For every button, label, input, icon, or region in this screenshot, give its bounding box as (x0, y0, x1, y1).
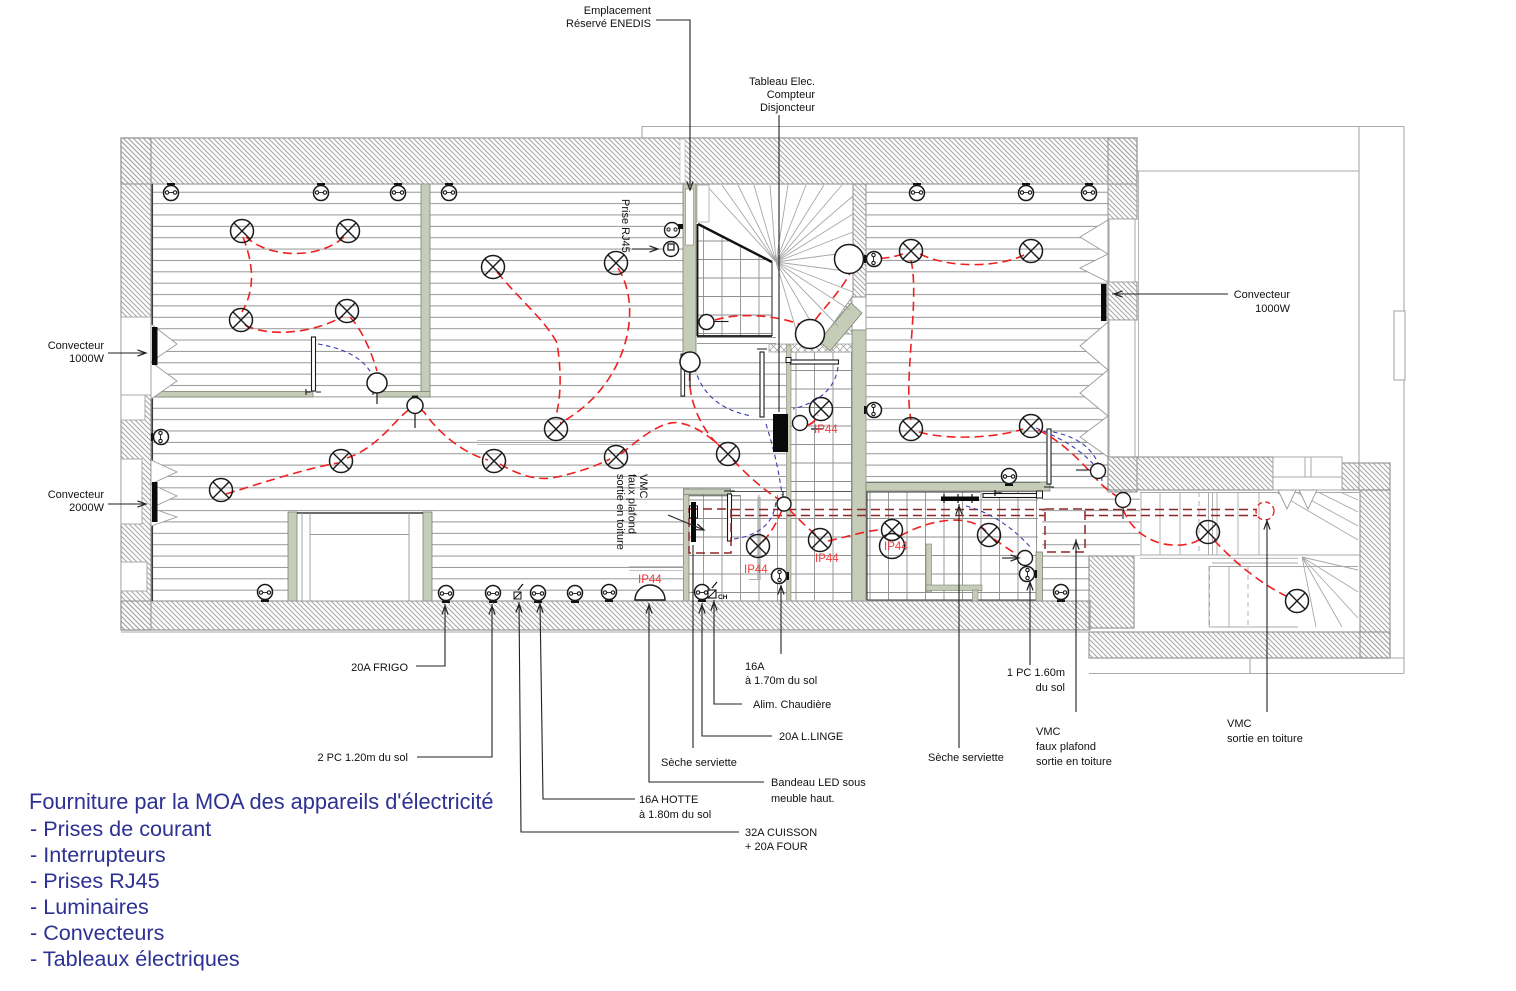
svg-text:Sèche serviette: Sèche serviette (928, 752, 1004, 764)
svg-text:Convecteur: Convecteur (48, 340, 105, 352)
svg-text:VMC: VMC (1227, 718, 1252, 730)
svg-text:à 1.70m du sol: à 1.70m du sol (745, 675, 817, 687)
svg-text:1 PC 1.60m: 1 PC 1.60m (1007, 667, 1065, 679)
svg-text:faux plafond: faux plafond (626, 474, 638, 534)
svg-text:CH: CH (718, 594, 728, 601)
svg-text:Tableau Elec.: Tableau Elec. (749, 76, 815, 88)
svg-text:VMC: VMC (637, 474, 649, 499)
svg-text:IP44: IP44 (815, 553, 839, 565)
svg-text:Fourniture par la MOA des appa: Fourniture par la MOA des appareils d'él… (29, 789, 494, 814)
svg-text:IP44: IP44 (744, 564, 768, 576)
svg-text:16A HOTTE: 16A HOTTE (639, 794, 698, 806)
svg-text:sortie en toiture: sortie en toiture (1036, 756, 1112, 768)
svg-text:IP44: IP44 (638, 574, 662, 586)
svg-text:2000W: 2000W (69, 502, 104, 514)
svg-text:Emplacement: Emplacement (584, 5, 651, 17)
svg-text:Alim. Chaudière: Alim. Chaudière (753, 699, 831, 711)
svg-text:20A FRIGO: 20A FRIGO (351, 662, 408, 674)
svg-text:IP44: IP44 (814, 424, 838, 436)
svg-text:Sèche serviette: Sèche serviette (661, 757, 737, 769)
svg-text:32A CUISSON: 32A CUISSON (745, 827, 817, 839)
svg-text:2 PC 1.20m du sol: 2 PC 1.20m du sol (318, 752, 409, 764)
svg-text:meuble haut.: meuble haut. (771, 793, 835, 805)
svg-text:20A L.LINGE: 20A L.LINGE (779, 731, 843, 743)
svg-text:- Interrupteurs: - Interrupteurs (30, 842, 166, 867)
svg-text:- Tableaux électriques: - Tableaux électriques (30, 946, 240, 971)
svg-text:VMC: VMC (1036, 726, 1061, 738)
svg-text:Prise RJ45: Prise RJ45 (619, 199, 631, 253)
svg-text:Convecteur: Convecteur (1234, 289, 1291, 301)
svg-text:Bandeau LED sous: Bandeau LED sous (771, 777, 866, 789)
svg-text:Compteur: Compteur (767, 89, 816, 101)
svg-text:à 1.80m du sol: à 1.80m du sol (639, 809, 711, 821)
svg-text:- Luminaires: - Luminaires (30, 894, 149, 919)
svg-text:Convecteur: Convecteur (48, 489, 105, 501)
svg-text:1000W: 1000W (1255, 303, 1290, 315)
svg-text:faux plafond: faux plafond (1036, 741, 1096, 753)
svg-text:- Prises de courant: - Prises de courant (30, 816, 211, 841)
svg-text:Réservé ENEDIS: Réservé ENEDIS (566, 18, 651, 30)
svg-text:1000W: 1000W (69, 353, 104, 365)
svg-text:sortie en toiture: sortie en toiture (614, 474, 626, 550)
svg-text:- Prises RJ45: - Prises RJ45 (30, 868, 160, 893)
svg-text:IP44: IP44 (884, 541, 908, 553)
svg-text:du sol: du sol (1036, 682, 1065, 694)
svg-text:+ 20A FOUR: + 20A FOUR (745, 841, 808, 853)
svg-text:sortie en toiture: sortie en toiture (1227, 733, 1303, 745)
svg-text:16A: 16A (745, 661, 765, 673)
svg-text:- Convecteurs: - Convecteurs (30, 920, 165, 945)
svg-text:Disjoncteur: Disjoncteur (760, 102, 815, 114)
